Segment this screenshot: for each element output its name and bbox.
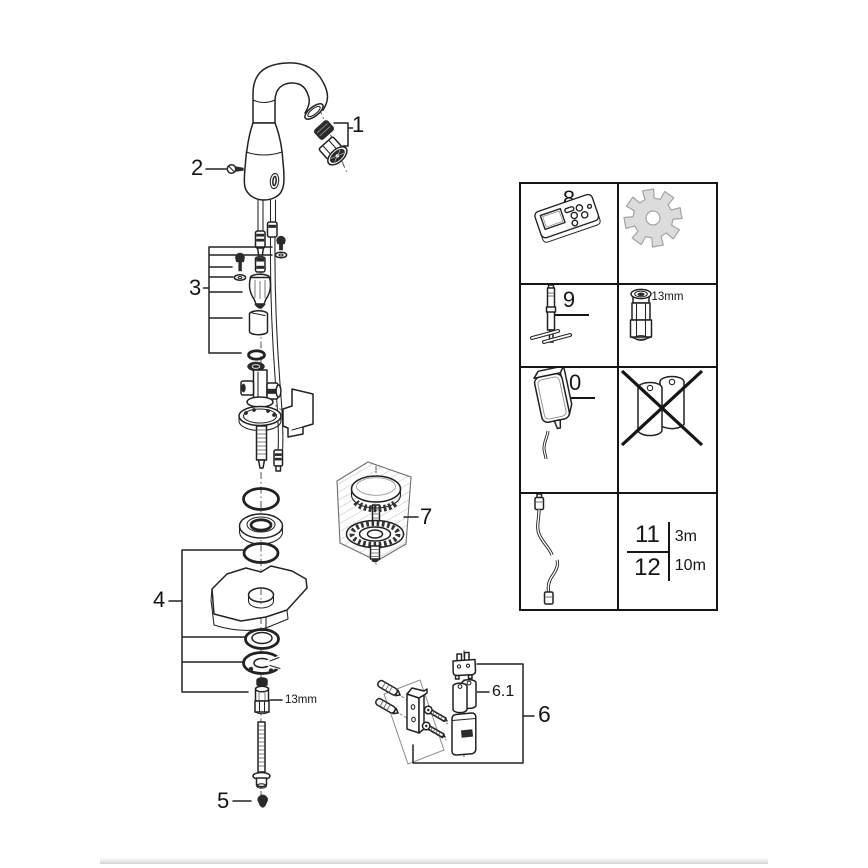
table-cell-item-8: 8 — [521, 184, 619, 285]
callout-1: 1 — [352, 114, 364, 136]
power-box-group — [375, 653, 534, 765]
power-supply-icon — [521, 368, 583, 460]
retaining-clip — [283, 389, 313, 437]
table-cell-cable — [521, 494, 619, 609]
no-battery-icon — [619, 368, 705, 448]
variant-lengths: 3m 10m — [668, 522, 708, 581]
item-12-number: 12 — [627, 553, 668, 581]
callout-6: 6 — [538, 703, 551, 726]
threaded-sleeve-13mm — [255, 686, 282, 714]
faucet-exploded-drawing — [0, 0, 868, 868]
table-cell-socket: 13mm — [619, 285, 716, 368]
mounting-stack — [211, 489, 307, 789]
threaded-rod — [258, 722, 265, 772]
exploded-parts-diagram: 1 2 3 4 5 6 6.1 7 13mm 8 — [0, 0, 868, 868]
table-cell-no-battery — [619, 368, 716, 494]
contact-cap — [453, 653, 476, 680]
table-cell-item-9: 9 — [521, 285, 619, 368]
gear-icon — [619, 184, 687, 252]
table-cell-length-variants: 11 12 3m 10m — [619, 494, 716, 609]
page-edge-bar — [100, 858, 768, 864]
accessories-table: 8 — [519, 182, 718, 611]
center-axis-lines — [261, 108, 464, 796]
callout-7: 7 — [420, 506, 432, 528]
callout-6-1: 6.1 — [492, 684, 514, 700]
variant-numbers: 11 12 — [627, 522, 668, 581]
acorn-cap — [233, 795, 268, 808]
table-cell-item-10: 10 — [521, 368, 619, 494]
aerator-assembly — [313, 119, 353, 168]
length-variants: 11 12 3m 10m — [627, 522, 708, 581]
table-cell-gear — [619, 184, 716, 285]
wall-plug-icons — [375, 679, 402, 716]
item-11-number: 11 — [627, 522, 668, 553]
battery-cover — [452, 713, 476, 755]
battery-pack — [453, 680, 476, 713]
callout-3: 3 — [189, 277, 201, 299]
extension-cable-icon — [521, 494, 581, 606]
callout-5: 5 — [217, 790, 229, 812]
deck-wedge — [211, 566, 307, 630]
drain-assembly — [337, 462, 418, 562]
remote-control-icon — [521, 184, 613, 250]
item-12-length: 10m — [670, 552, 708, 582]
socket-13mm-icon — [619, 287, 663, 345]
rod-wrench-size-label: 13mm — [285, 695, 317, 707]
mounting-tool-icon — [521, 285, 581, 347]
set-screw — [206, 165, 244, 173]
callout-4: 4 — [153, 589, 165, 611]
horseshoe-clamp — [244, 653, 287, 674]
cartridge-stack — [234, 236, 286, 371]
item-11-length: 3m — [670, 522, 708, 552]
callout-2: 2 — [191, 157, 203, 179]
mounting-screws — [421, 705, 450, 741]
